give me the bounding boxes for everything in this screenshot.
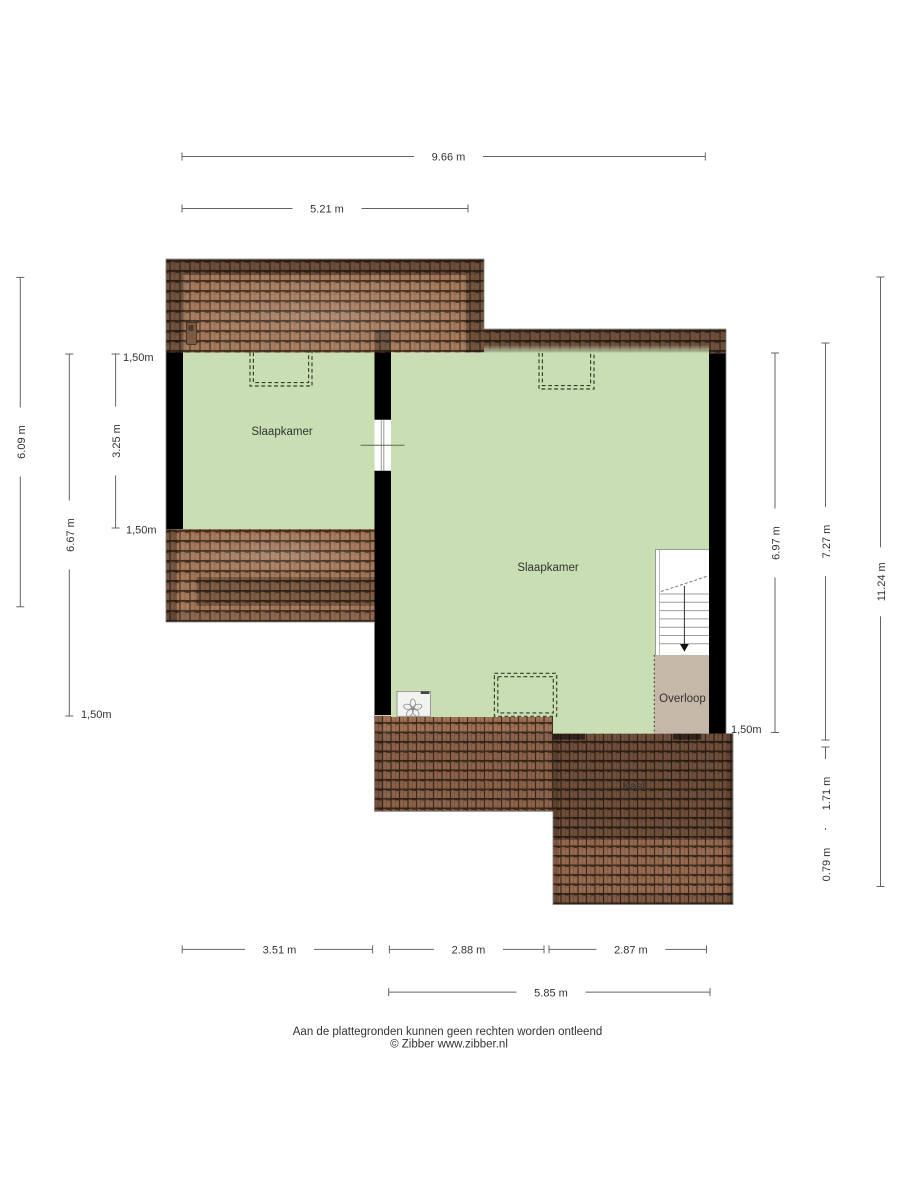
svg-text:6.97 m: 6.97 m [771,526,783,560]
svg-text:© Zibber www.zibber.nl: © Zibber www.zibber.nl [390,1039,508,1051]
svg-text:1.71 m: 1.71 m [821,777,833,811]
svg-text:Overloop: Overloop [659,693,706,705]
svg-text:3.25 m: 3.25 m [111,424,123,458]
svg-text:0.79 m: 0.79 m [821,848,833,882]
svg-text:1,50m: 1,50m [123,352,154,364]
svg-text:Slaapkamer: Slaapkamer [251,426,313,438]
svg-text:3.51 m: 3.51 m [263,945,297,957]
svg-text:5.21 m: 5.21 m [310,204,344,216]
svg-text:5.85 m: 5.85 m [534,988,568,1000]
svg-text:1,50m: 1,50m [126,525,157,537]
svg-text:Slaapkamer: Slaapkamer [517,562,579,574]
svg-text:Kast: Kast [622,781,646,793]
svg-text:6.67 m: 6.67 m [65,518,77,552]
svg-text:9.66 m: 9.66 m [432,152,466,164]
svg-text:Aan de plattegronden kunnen ge: Aan de plattegronden kunnen geen rechten… [293,1026,602,1038]
svg-text:2.87 m: 2.87 m [614,945,648,957]
svg-text:2.88 m: 2.88 m [452,945,486,957]
svg-text:11.24 m: 11.24 m [876,562,888,601]
svg-text:1,50m: 1,50m [731,724,762,736]
svg-text:7.27 m: 7.27 m [821,525,833,559]
svg-text:6.09 m: 6.09 m [16,425,28,459]
svg-text:1,50m: 1,50m [81,709,112,721]
